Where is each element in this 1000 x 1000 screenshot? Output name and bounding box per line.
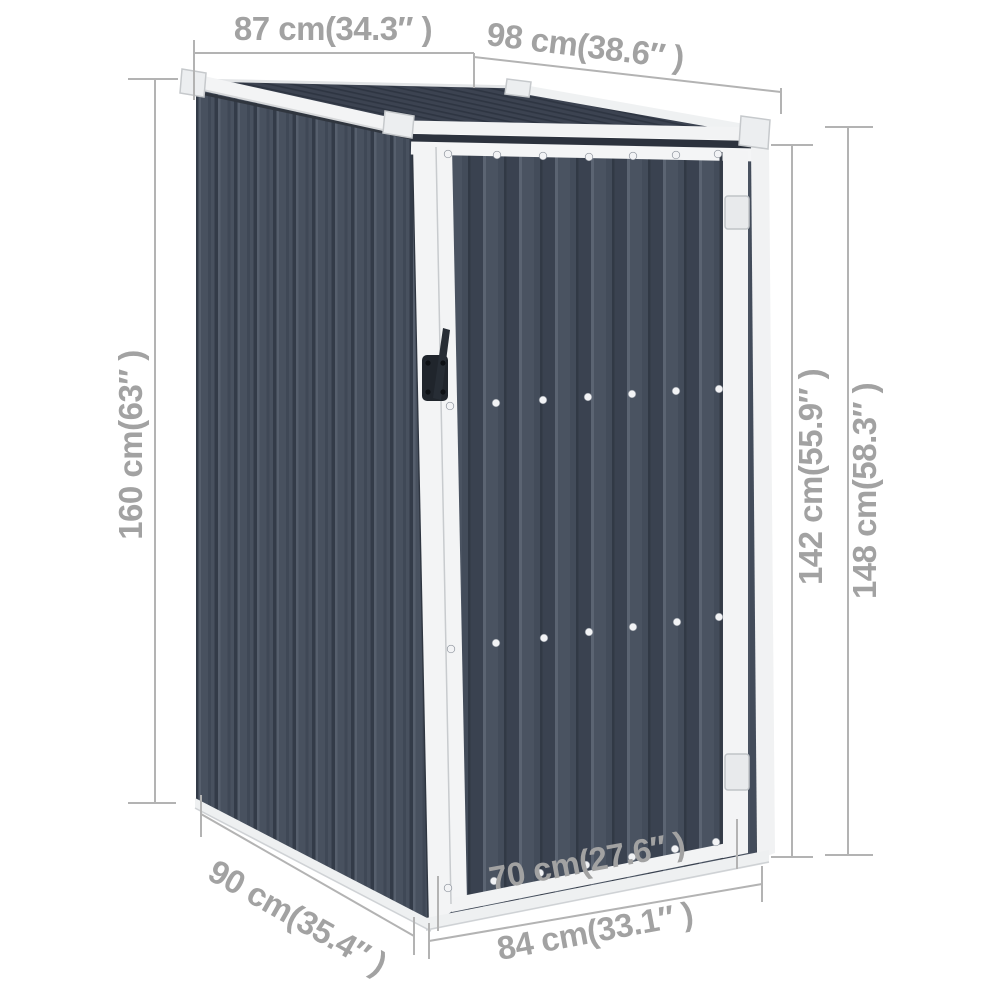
shed [180, 69, 775, 932]
latch-screw [440, 360, 445, 365]
product-dimension-diagram: 87 cm(34.3″ ) 98 cm(38.6″ ) 160 cm(63″ )… [0, 0, 1000, 1000]
cap-front-right [739, 116, 770, 149]
latch-screw [440, 389, 445, 394]
cap-front-left [383, 111, 414, 138]
label-front-height: 148 cm(58.3″ ) [846, 383, 883, 599]
door-right-stile [723, 149, 748, 858]
side-panel-surface [196, 84, 429, 928]
side-panel [196, 84, 429, 928]
shed-dimension-drawing: 87 cm(34.3″ ) 98 cm(38.6″ ) 160 cm(63″ )… [0, 0, 1000, 1000]
front-panel-surface [414, 134, 767, 928]
label-rear-height: 160 cm(63″ ) [112, 350, 149, 540]
door-top-rail [411, 148, 757, 155]
label-roof-depth: 87 cm(34.3″ ) [234, 10, 432, 47]
roof-front-fascia [410, 127, 757, 134]
label-roof-width: 98 cm(38.6″ ) [485, 15, 686, 76]
label-door-height: 142 cm(55.9″ ) [792, 369, 829, 585]
door-hinge-bottom [725, 754, 749, 790]
latch-screw [425, 389, 430, 394]
cap-back-right [505, 79, 531, 97]
latch-screw [425, 360, 430, 365]
door-hinge-top [725, 196, 749, 229]
front-panel [410, 127, 775, 928]
